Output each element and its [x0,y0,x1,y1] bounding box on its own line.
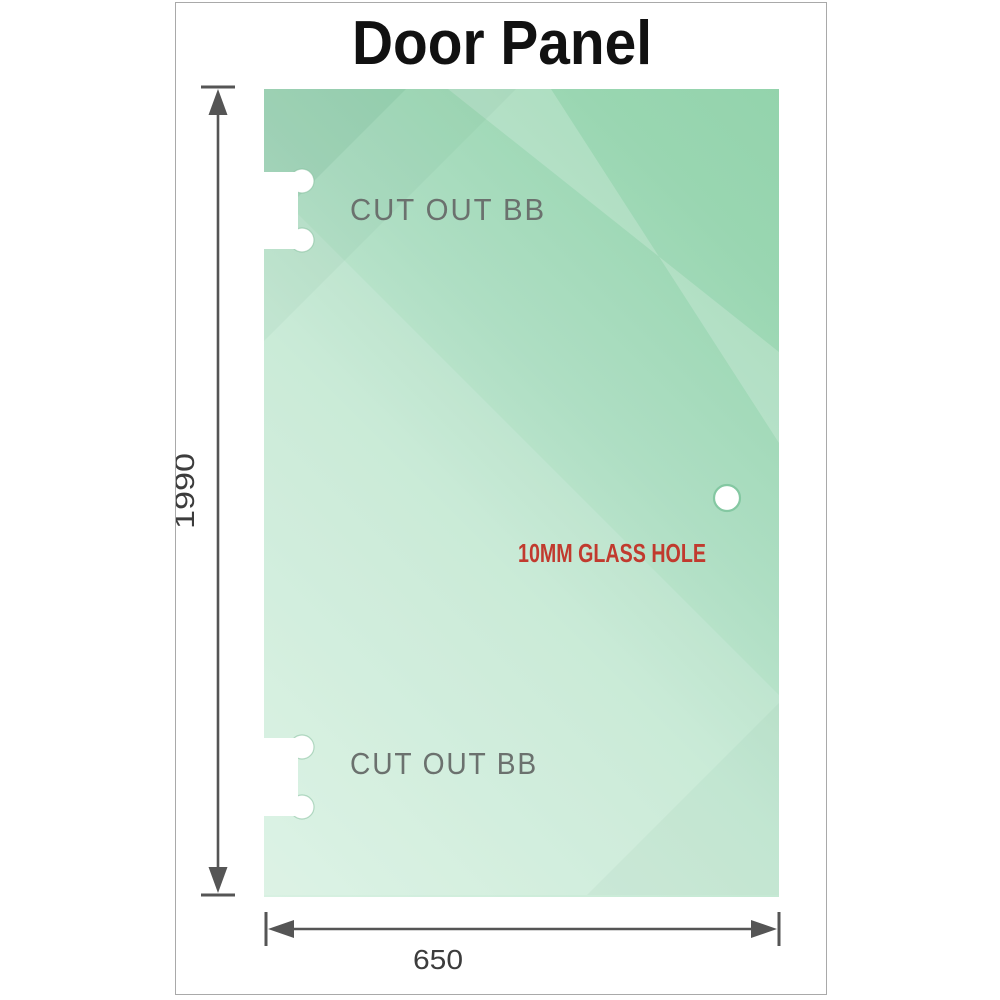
cutout-bottom-label: CUT OUT BB [350,746,538,781]
glass-hole-label: 10MM GLASS HOLE [518,538,706,568]
door-panel-drawing: Door Panel [176,3,826,994]
glass-hole [714,485,740,511]
width-dimension-value: 650 [413,944,463,975]
width-dimension [266,912,779,946]
arrow-left-icon [268,920,294,938]
page-title: Door Panel [352,9,652,78]
cutout-bottom-slot [263,738,298,816]
arrow-up-icon [209,89,228,115]
arrow-right-icon [751,920,777,938]
cutout-top-slot [263,172,298,249]
diagram-canvas: Door Panel [0,0,1000,1000]
drawing-frame: Door Panel [175,2,827,995]
arrow-down-icon [209,867,228,893]
height-dimension [201,87,235,895]
cutout-top-label: CUT OUT BB [350,192,546,227]
height-dimension-value: 1990 [176,453,200,529]
